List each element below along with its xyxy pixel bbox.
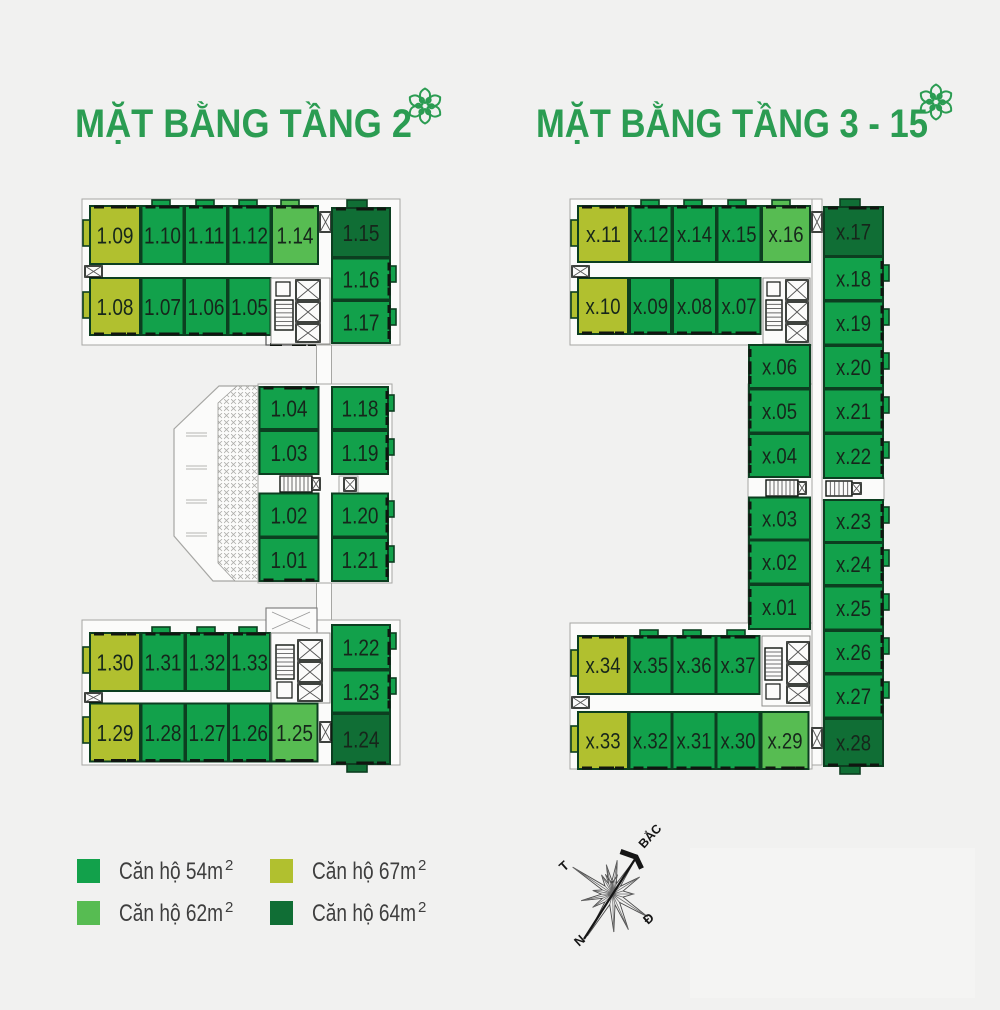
svg-text:1.02: 1.02	[271, 502, 308, 528]
svg-text:x.28: x.28	[836, 730, 871, 755]
svg-text:x.29: x.29	[768, 728, 803, 753]
svg-text:x.23: x.23	[836, 509, 871, 534]
svg-text:1.06: 1.06	[188, 294, 225, 320]
svg-text:x.07: x.07	[722, 294, 757, 319]
svg-text:Căn hộ 54m: Căn hộ 54m	[119, 858, 223, 885]
svg-text:Căn hộ 67m: Căn hộ 67m	[312, 858, 416, 885]
svg-text:1.14: 1.14	[277, 222, 314, 248]
svg-text:1.04: 1.04	[271, 395, 308, 421]
svg-text:x.16: x.16	[769, 222, 804, 247]
svg-text:1.05: 1.05	[231, 294, 268, 320]
svg-text:2: 2	[418, 899, 426, 916]
svg-text:1.16: 1.16	[343, 266, 380, 292]
svg-text:x.18: x.18	[836, 266, 871, 291]
svg-text:1.28: 1.28	[145, 720, 182, 746]
svg-text:x.36: x.36	[677, 653, 712, 678]
svg-text:1.10: 1.10	[144, 222, 181, 248]
svg-text:1.17: 1.17	[343, 309, 380, 335]
svg-text:1.25: 1.25	[276, 720, 313, 746]
svg-text:1.08: 1.08	[97, 294, 134, 320]
svg-text:2: 2	[225, 899, 233, 916]
svg-text:x.24: x.24	[836, 552, 871, 577]
svg-text:x.37: x.37	[721, 653, 756, 678]
svg-text:1.26: 1.26	[231, 720, 268, 746]
svg-text:x.21: x.21	[836, 399, 871, 424]
svg-text:x.09: x.09	[633, 294, 668, 319]
svg-text:1.01: 1.01	[271, 547, 308, 573]
svg-text:1.18: 1.18	[342, 395, 379, 421]
svg-text:x.14: x.14	[677, 222, 712, 247]
svg-text:1.23: 1.23	[343, 679, 380, 705]
svg-text:1.33: 1.33	[231, 649, 268, 675]
svg-text:1.24: 1.24	[343, 726, 380, 752]
svg-text:x.25: x.25	[836, 596, 871, 621]
svg-text:1.20: 1.20	[342, 502, 379, 528]
svg-text:2: 2	[225, 857, 233, 874]
svg-text:x.02: x.02	[762, 550, 797, 575]
svg-text:1.03: 1.03	[271, 440, 308, 466]
svg-text:x.35: x.35	[633, 653, 668, 678]
svg-text:x.03: x.03	[762, 506, 797, 531]
svg-text:x.06: x.06	[762, 354, 797, 379]
svg-text:x.26: x.26	[836, 640, 871, 665]
svg-text:1.30: 1.30	[97, 649, 134, 675]
svg-text:x.34: x.34	[586, 653, 621, 678]
svg-text:1.29: 1.29	[97, 720, 134, 746]
svg-text:1.12: 1.12	[231, 222, 268, 248]
svg-text:x.04: x.04	[762, 443, 797, 468]
svg-text:x.11: x.11	[586, 222, 621, 247]
svg-text:x.31: x.31	[677, 728, 712, 753]
svg-text:Căn hộ 62m: Căn hộ 62m	[119, 900, 223, 927]
svg-text:x.20: x.20	[836, 355, 871, 380]
svg-text:1.19: 1.19	[342, 440, 379, 466]
svg-text:1.11: 1.11	[188, 222, 225, 248]
svg-text:1.09: 1.09	[97, 222, 134, 248]
svg-text:1.22: 1.22	[343, 634, 380, 660]
svg-text:1.31: 1.31	[145, 649, 182, 675]
svg-text:x.08: x.08	[677, 294, 712, 319]
svg-text:x.19: x.19	[836, 311, 871, 336]
svg-text:2: 2	[418, 857, 426, 874]
svg-text:MẶT BẰNG TẦNG 2: MẶT BẰNG TẦNG 2	[75, 100, 412, 146]
svg-text:1.32: 1.32	[189, 649, 226, 675]
svg-text:1.27: 1.27	[189, 720, 226, 746]
svg-text:1.07: 1.07	[144, 294, 181, 320]
svg-text:x.22: x.22	[836, 444, 871, 469]
svg-text:x.05: x.05	[762, 399, 797, 424]
svg-text:x.01: x.01	[762, 595, 797, 620]
svg-text:x.27: x.27	[836, 684, 871, 709]
svg-text:1.15: 1.15	[343, 220, 380, 246]
svg-text:MẶT BẰNG TẦNG 3 - 15: MẶT BẰNG TẦNG 3 - 15	[536, 100, 928, 146]
svg-text:x.17: x.17	[836, 219, 871, 244]
svg-text:Căn hộ 64m: Căn hộ 64m	[312, 900, 416, 927]
svg-text:x.33: x.33	[586, 728, 621, 753]
svg-text:1.21: 1.21	[342, 547, 379, 573]
svg-text:x.32: x.32	[633, 728, 668, 753]
svg-text:x.30: x.30	[721, 728, 756, 753]
svg-text:x.12: x.12	[634, 222, 669, 247]
svg-text:x.15: x.15	[722, 222, 757, 247]
svg-text:x.10: x.10	[586, 294, 621, 319]
